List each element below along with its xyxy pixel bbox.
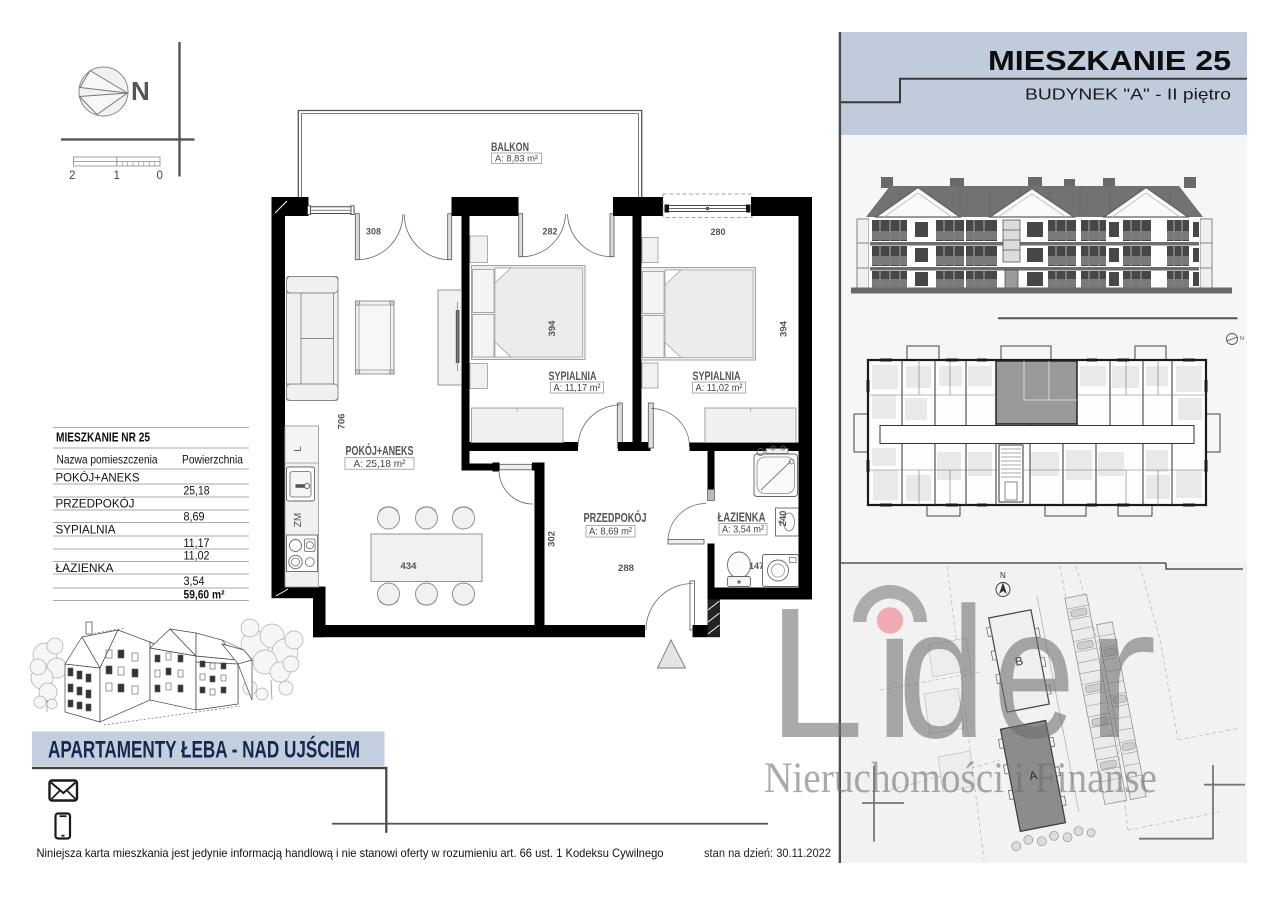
svg-text:282: 282: [543, 227, 558, 238]
svg-text:Nieruchomości i Finanse: Nieruchomości i Finanse: [764, 755, 1157, 802]
svg-text:59,60 m²: 59,60 m²: [184, 588, 225, 602]
svg-text:A: 8,83 m²: A: 8,83 m²: [495, 154, 538, 165]
svg-text:280: 280: [711, 227, 726, 238]
svg-text:A: 3,54 m²: A: 3,54 m²: [722, 524, 764, 536]
svg-text:SYPIALNIA: SYPIALNIA: [693, 369, 741, 383]
svg-text:r: r: [1085, 570, 1157, 777]
svg-text:ZM: ZM: [293, 513, 304, 527]
svg-text:A: 25,18 m²: A: 25,18 m²: [354, 458, 406, 470]
svg-text:N: N: [131, 76, 150, 106]
svg-text:APARTAMENTY ŁEBA - NAD UJŚCIEM: APARTAMENTY ŁEBA - NAD UJŚCIEM: [48, 736, 360, 764]
svg-text:1: 1: [114, 170, 120, 182]
svg-text:MIESZKANIE 25: MIESZKANIE 25: [988, 45, 1231, 76]
svg-text:POKÓJ+ANEKS: POKÓJ+ANEKS: [346, 443, 414, 458]
svg-text:240: 240: [778, 511, 789, 527]
svg-text:A: 8,69 m²: A: 8,69 m²: [589, 526, 632, 538]
svg-text:2: 2: [69, 170, 75, 182]
svg-text:Nazwa pomieszczenia: Nazwa pomieszczenia: [57, 453, 158, 467]
svg-text:8,69: 8,69: [184, 510, 205, 524]
svg-text:PRZEDPOKÓJ: PRZEDPOKÓJ: [56, 496, 135, 511]
svg-text:147: 147: [749, 561, 764, 572]
svg-text:706: 706: [337, 414, 348, 430]
svg-text:434: 434: [401, 561, 418, 572]
svg-text:A: 11,17 m²: A: 11,17 m²: [554, 382, 601, 394]
svg-text:302: 302: [547, 531, 558, 547]
svg-text:e: e: [993, 570, 1075, 777]
svg-text:BUDYNEK "A" - II piętro: BUDYNEK "A" - II piętro: [1025, 87, 1231, 104]
svg-text:308: 308: [366, 227, 381, 238]
svg-text:Powierzchnia: Powierzchnia: [182, 453, 243, 467]
svg-text:SYPIALNIA: SYPIALNIA: [549, 369, 597, 383]
svg-text:3,54: 3,54: [184, 574, 205, 588]
svg-text:MIESZKANIE NR 25: MIESZKANIE NR 25: [56, 431, 150, 445]
svg-text:BALKON: BALKON: [491, 142, 529, 154]
svg-text:SYPIALNIA: SYPIALNIA: [56, 523, 116, 537]
svg-text:A: 11,02 m²: A: 11,02 m²: [696, 382, 743, 394]
svg-text:11,02: 11,02: [184, 549, 210, 563]
svg-text:POKÓJ+ANEKS: POKÓJ+ANEKS: [56, 470, 140, 485]
svg-text:PRZEDPOKÓJ: PRZEDPOKÓJ: [584, 510, 647, 525]
svg-text:L: L: [768, 570, 864, 777]
svg-text:N: N: [1240, 336, 1244, 342]
svg-text:stan na dzień: 30.11.2022: stan na dzień: 30.11.2022: [704, 848, 831, 860]
svg-text:25,18: 25,18: [184, 484, 210, 498]
svg-text:394: 394: [547, 320, 558, 337]
svg-text:0: 0: [157, 170, 163, 182]
svg-text:288: 288: [618, 563, 634, 574]
svg-text:ŁAZIENKA: ŁAZIENKA: [718, 511, 766, 525]
svg-text:ŁAZIENKA: ŁAZIENKA: [56, 561, 114, 575]
svg-text:L: L: [293, 446, 304, 452]
svg-text:394: 394: [779, 320, 790, 337]
svg-text:Niniejsza karta mieszkania jes: Niniejsza karta mieszkania jest jedynie …: [37, 846, 664, 860]
